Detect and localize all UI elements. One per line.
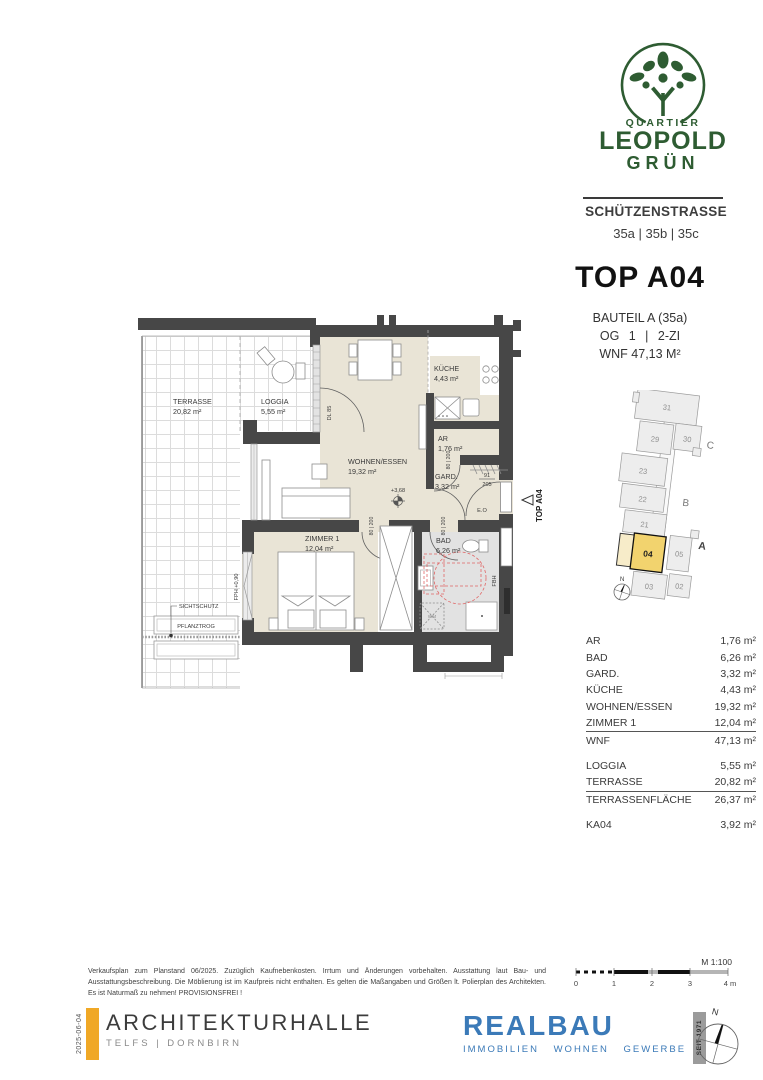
row-label: WNF: [586, 735, 610, 747]
scale-1: 1: [612, 979, 616, 988]
site-label-21: 21: [640, 520, 649, 530]
label-loggia-area: 5,55 m²: [261, 407, 286, 416]
compass-n-label: N: [711, 1006, 720, 1017]
site-label-c: C: [706, 440, 715, 452]
row-label: LOGGIA: [586, 760, 626, 772]
brand-logo: QUARTIER LEOPOLD GRÜN: [598, 38, 728, 178]
scale-2: 2: [650, 979, 654, 988]
nightstand: [355, 618, 364, 630]
label-eo: E.O: [477, 508, 487, 514]
architect-logo: 2025-06-04 ARCHITEKTURHALLE TELFS | DORN…: [76, 1008, 372, 1060]
row-value: 5,55 m²: [720, 760, 756, 772]
heater: [504, 588, 510, 614]
logo-gruen: GRÜN: [627, 153, 700, 173]
site-label-04: 04: [643, 548, 654, 559]
site-label-b: B: [682, 498, 690, 510]
label-ar: AR: [438, 434, 448, 443]
realbau-sub: IMMOBILIEN WOHNEN GEWERBE: [463, 1044, 686, 1055]
row-label: GARD.: [586, 668, 619, 680]
label-door-ar: 80 | 200: [446, 451, 452, 470]
label-bad: BAD: [436, 536, 451, 545]
label-door-zimmer: 80 | 200: [369, 517, 375, 536]
label-gard-area: 3,32 m²: [435, 482, 460, 491]
realbau-logo: REALBAU IMMOBILIEN WOHNEN GEWERBE SEIT 1…: [463, 1012, 706, 1064]
architect-name: ARCHITEKTURHALLE: [106, 1011, 372, 1035]
label-kueche-area: 4,43 m²: [434, 374, 459, 383]
toilet: [463, 540, 480, 552]
tall-cabinet: [419, 405, 426, 449]
row-label: WOHNEN/ESSEN: [586, 701, 672, 713]
street-numbers: 35a | 35b | 35c: [568, 226, 744, 241]
site-label-30: 30: [683, 434, 692, 444]
site-label-03: 03: [644, 582, 653, 592]
site-north-label: N: [620, 577, 624, 583]
label-sichtschutz: SICHTSCHUTZ: [179, 604, 219, 610]
label-bad-area: 6,26 m²: [436, 546, 461, 555]
areas-table: AR1,76 m² BAD6,26 m² GARD.3,32 m² KÜCHE4…: [586, 633, 756, 833]
label-zimmer: ZIMMER 1: [305, 534, 339, 543]
row-label: AR: [586, 635, 601, 647]
entrance-arrow-icon: [522, 495, 533, 505]
table-row: WOHNEN/ESSEN19,32 m²: [586, 699, 756, 715]
row-value: 1,76 m²: [720, 635, 756, 647]
label-terrasse: TERRASSE: [173, 397, 212, 406]
entrance-label: TOP A04: [535, 489, 544, 522]
table-row: ZIMMER 112,04 m²: [586, 715, 756, 731]
label-wohnen: WOHNEN/ESSEN: [348, 457, 407, 466]
label-fph: FPH +0,90: [234, 574, 240, 601]
label-dl85: DL 85: [327, 406, 333, 421]
table-row: LOGGIA5,55 m²: [586, 758, 756, 774]
kitchen-appliance: [463, 399, 479, 416]
row-value: 3,92 m²: [720, 819, 756, 831]
entrance-marker: TOP A04: [522, 489, 544, 522]
scale-4: 4 m: [724, 979, 737, 988]
dining-table: [358, 340, 392, 380]
site-label-05: 05: [675, 549, 684, 559]
scale-0: 0: [574, 979, 578, 988]
site-key-plan: 31 29 30 23 22 21 04 05 03 02 C B A N: [608, 390, 760, 608]
label-fbh: FBH: [492, 575, 498, 586]
table-row: GARD.3,32 m²: [586, 666, 756, 682]
entry-door-leaf: [501, 482, 512, 512]
row-value: 26,37 m²: [715, 794, 756, 806]
site-label-02: 02: [675, 581, 684, 591]
row-value: 19,32 m²: [715, 701, 756, 713]
unit-floor-rooms: OG 1 | 2-ZI: [540, 329, 740, 343]
scale-label: M 1:100: [701, 957, 732, 967]
row-label: KA04: [586, 819, 612, 831]
disclaimer-text: Verkaufsplan zum Planstand 06/2025. Zuzü…: [88, 966, 546, 1000]
label-kueche: KÜCHE: [434, 364, 459, 373]
row-value: 4,43 m²: [720, 684, 756, 696]
site-north-icon: N: [614, 577, 630, 600]
table-row-wnf: WNF47,13 m²: [586, 731, 756, 748]
label-wohnen-area: 19,32 m²: [348, 467, 377, 476]
table-row: AR1,76 m²: [586, 633, 756, 649]
cooktop: [483, 366, 489, 372]
plan-date: 2025-06-04: [76, 1008, 83, 1060]
table-row: BAD6,26 m²: [586, 649, 756, 665]
street-name: SCHÜTZENSTRASSE: [568, 204, 744, 219]
site-label-29: 29: [650, 434, 659, 444]
label-entry-width: 91: [484, 473, 490, 479]
label-zimmer-area: 12,04 m²: [305, 544, 334, 553]
label-door-bad: 80 | 200: [441, 517, 447, 536]
scale-bar: M 1:100 0 1 2 3 4 m: [572, 956, 742, 996]
label-entry-height: 205: [482, 482, 491, 488]
row-label: TERRASSE: [586, 776, 643, 788]
row-value: 6,26 m²: [720, 652, 756, 664]
label-wm: WM: [428, 614, 436, 619]
header-divider: [583, 197, 723, 199]
scale-3: 3: [688, 979, 692, 988]
table-row-terrassenflaeche: TERRASSENFLÄCHE26,37 m²: [586, 791, 756, 808]
table-row: KÜCHE4,43 m²: [586, 682, 756, 698]
label-terrasse-area: 20,82 m²: [173, 407, 202, 416]
tree-icon: [629, 52, 698, 117]
table-row-ka04: KA043,92 m²: [586, 817, 756, 833]
row-value: 3,32 m²: [720, 668, 756, 680]
sideboard: [262, 460, 270, 520]
north-compass: N: [686, 1002, 750, 1074]
architect-locations: TELFS | DORNBIRN: [106, 1038, 372, 1049]
row-label: KÜCHE: [586, 684, 623, 696]
logo-leopold: LEOPOLD: [599, 127, 727, 155]
shaft: [501, 528, 512, 566]
table-row: TERRASSE20,82 m²: [586, 774, 756, 790]
label-level: +3,68: [391, 488, 405, 494]
label-gard: GARD.: [435, 472, 458, 481]
row-label: ZIMMER 1: [586, 717, 636, 729]
floor-plan: TERRASSE 20,82 m² LOGGIA 5,55 m² WOHNEN/…: [130, 300, 550, 692]
site-label-31: 31: [662, 403, 671, 413]
unit-title: TOP A04: [540, 261, 740, 295]
row-label: TERRASSENFLÄCHE: [586, 794, 692, 806]
label-loggia: LOGGIA: [261, 397, 289, 406]
label-pflanztrog: PFLANZTROG: [177, 624, 215, 630]
nightstand: [269, 618, 278, 630]
row-value: 20,82 m²: [715, 776, 756, 788]
site-label-23: 23: [638, 466, 647, 476]
row-value: 12,04 m²: [715, 717, 756, 729]
realbau-name: REALBAU: [463, 1012, 686, 1040]
loggia-glazing: [313, 345, 320, 432]
architect-bar-icon: [86, 1008, 99, 1060]
unit-bauteil: BAUTEIL A (35a): [540, 311, 740, 325]
floorplan-page: QUARTIER LEOPOLD GRÜN SCHÜTZENSTRASSE 35…: [0, 0, 763, 1080]
unit-wnf: WNF 47,13 M²: [540, 347, 740, 361]
loggia-table: [272, 361, 294, 383]
site-label-22: 22: [638, 494, 647, 504]
site-label-a: A: [698, 540, 707, 553]
row-value: 47,13 m²: [715, 735, 756, 747]
sofa: [282, 488, 350, 518]
coffee-table: [312, 464, 327, 479]
row-label: BAD: [586, 652, 608, 664]
